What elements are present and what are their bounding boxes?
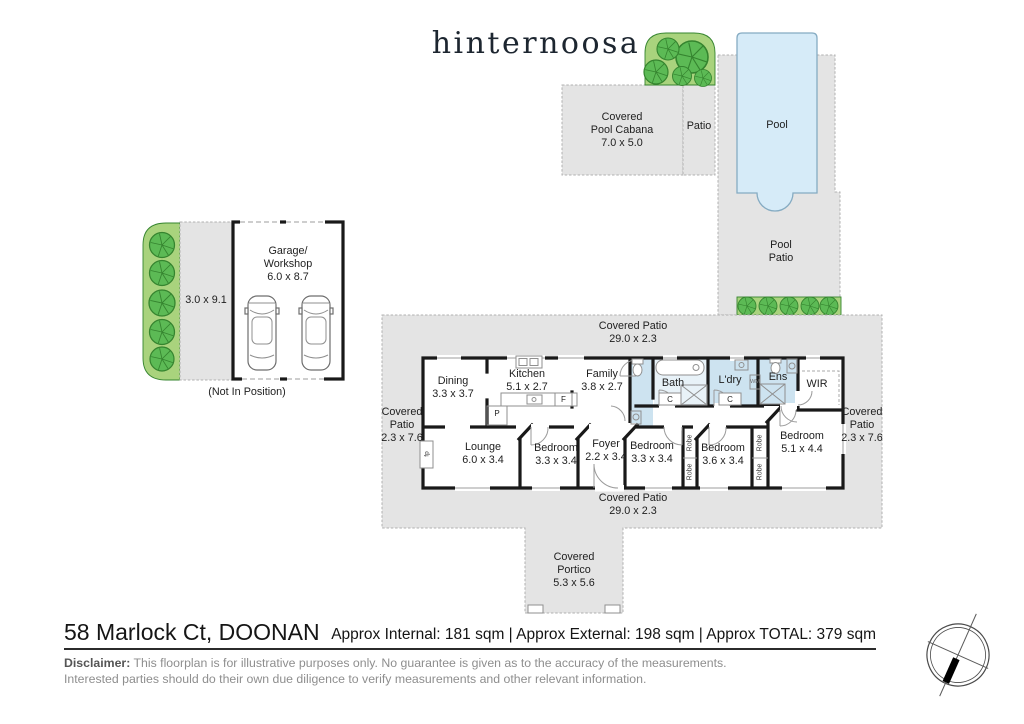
pool-area [562,33,841,315]
room-label-family: Family3.8 x 2.7 [581,368,622,394]
room-label-lounge: Lounge6.0 x 3.4 [462,441,503,467]
room-label-ensuite: Ens [769,371,788,384]
footer-divider [64,648,876,650]
compass-icon [910,600,1007,709]
car-icon [299,296,333,370]
room-label-kitchen: Kitchen5.1 x 2.7 [506,368,547,394]
portico-pillar [528,605,543,613]
garage-side-dim: 3.0 x 9.1 [185,294,226,307]
room-label-dining: Dining3.3 x 3.7 [432,375,473,401]
cupboard-label: C [727,395,733,404]
floorplan-graphics [0,0,1024,724]
room-label-bedroom4: Bedroom5.1 x 4.4 [780,430,824,456]
room-label-laundry: L'dry [718,374,741,387]
fireplace-label: fp [423,451,430,456]
brand-logo: hinternoosa [432,26,641,61]
portico-label: Covered Portico 5.3 x 5.6 [553,551,594,590]
robe-label: Robe [687,464,694,481]
bathtub [656,360,704,375]
car-icon [245,296,279,370]
garage-label: Garage/ Workshop 6.0 x 8.7 [264,245,312,284]
garage-note: (Not In Position) [208,386,285,399]
disclaimer-label: Disclaimer: [64,656,130,670]
room-label-wir: WIR [807,378,828,391]
robe-label: Robe [687,435,694,452]
pantry-label: P [494,409,499,418]
area-summary: Approx Internal: 181 sqm | Approx Extern… [331,626,876,644]
garage-area [143,219,343,382]
cabana-label: Covered Pool Cabana 7.0 x 5.0 [591,111,653,150]
robe-label: Robe [757,464,764,481]
pool-patio-label: Pool Patio [769,239,794,265]
disclaimer-line2: Interested parties should do their own d… [64,672,646,686]
room-label-bedroom1: Bedroom3.3 x 3.4 [534,442,578,468]
fridge-label: F [561,395,566,404]
toilet [632,359,643,364]
floorplan-page: hinternoosa Covered Pool Cabana 7.0 x 5.… [0,0,1024,724]
patio-right-label: Covered Patio 2.3 x 7.6 [841,406,882,445]
washer-label: WM [750,379,760,385]
patio-bottom-label: Covered Patio 29.0 x 2.3 [599,492,667,518]
room-label-bedroom3: Bedroom3.6 x 3.4 [701,442,745,468]
room-label-bath: Bath [662,377,684,390]
patio-left-label: Covered Patio 2.3 x 7.6 [381,406,422,445]
cupboard-label: C [667,395,673,404]
disclaimer-line1: Disclaimer: This floorplan is for illust… [64,656,727,670]
robe-label: Robe [757,435,764,452]
patio-strip-label: Patio [687,120,712,133]
portico-pillar [605,605,620,613]
room-label-bedroom2: Bedroom3.3 x 3.4 [630,440,674,466]
patio-top-label: Covered Patio 29.0 x 2.3 [599,320,667,346]
room-label-foyer: Foyer2.2 x 3.4 [585,438,626,464]
property-address: 58 Marlock Ct, DOONAN [64,619,320,646]
pool-label: Pool [766,119,788,132]
